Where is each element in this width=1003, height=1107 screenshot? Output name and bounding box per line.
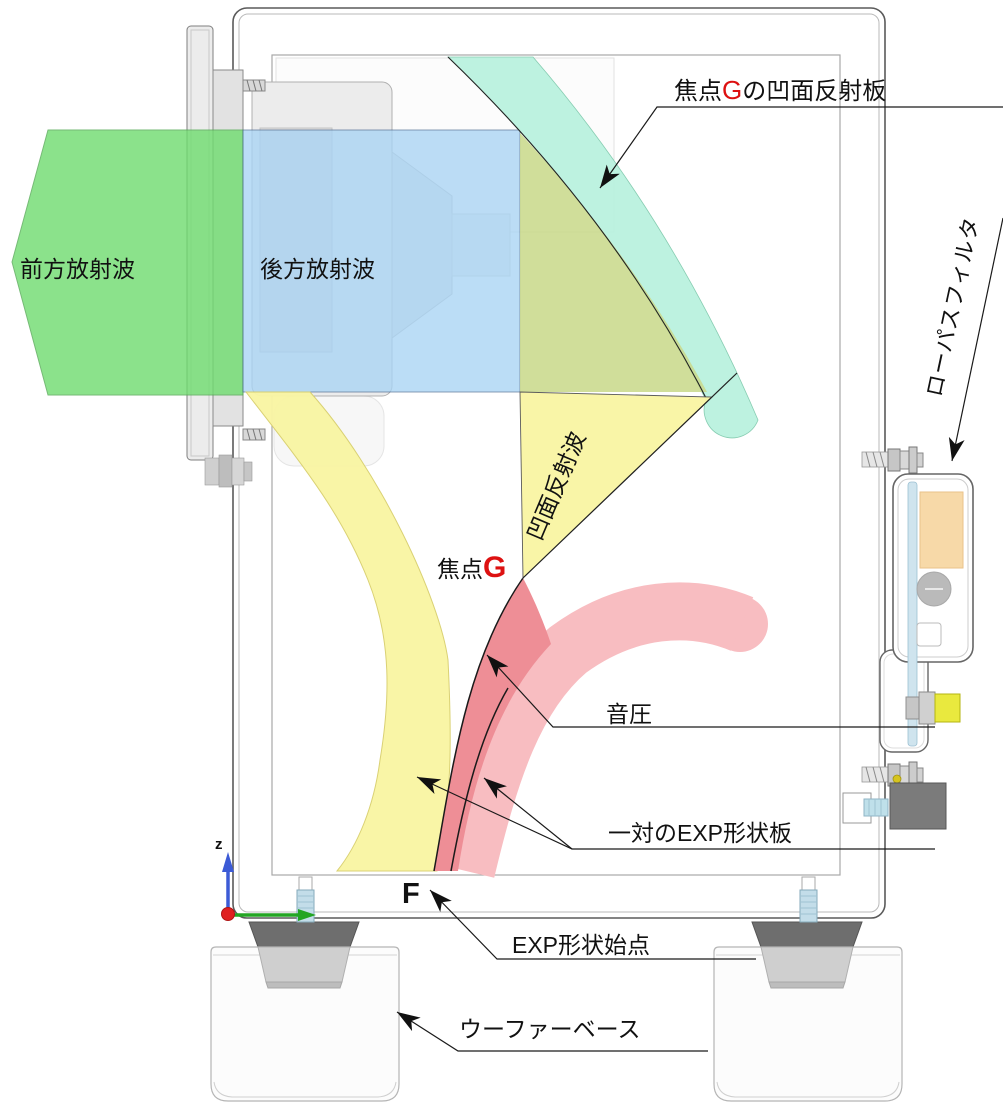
connector-barrel bbox=[906, 697, 919, 719]
connector-nut bbox=[919, 692, 935, 724]
inner-blue-bolt-icon bbox=[864, 799, 888, 816]
label-rear-wave: 後方放射波 bbox=[260, 256, 375, 282]
label-point-f: F bbox=[402, 878, 420, 910]
label-sound-pressure: 音圧 bbox=[606, 701, 652, 727]
diagram-canvas: z 焦点Gの凹面反射板 前方放射波 後方放射波 凹面反射波 焦点G 音圧 一対の… bbox=[0, 0, 1003, 1107]
filter-bottom-box bbox=[890, 783, 946, 829]
foot-cone-light bbox=[258, 947, 350, 982]
foot-cone-dark bbox=[249, 922, 359, 947]
label-exp-pair: 一対のEXP形状板 bbox=[608, 820, 792, 846]
filter-capacitor bbox=[920, 492, 963, 568]
wire-dot bbox=[893, 775, 901, 783]
label-front-wave: 前方放射波 bbox=[20, 256, 135, 282]
label-reflector: 焦点Gの凹面反射板 bbox=[674, 75, 886, 105]
baffle-bolt-top-icon bbox=[243, 80, 265, 91]
label-focus-g: 焦点G bbox=[437, 551, 506, 584]
foot-bolt-cap bbox=[299, 877, 312, 891]
connector-yellow bbox=[935, 694, 960, 722]
label-woofer-base: ウーファーベース bbox=[459, 1016, 640, 1042]
filter-terminal bbox=[917, 623, 941, 646]
baffle-bolt-bottom-icon bbox=[243, 429, 265, 440]
speaker-cross-section-diagram: z 焦点Gの凹面反射板 前方放射波 後方放射波 凹面反射波 焦点G 音圧 一対の… bbox=[0, 0, 1003, 1107]
label-lowpass: ローパスフィルタ bbox=[921, 215, 984, 400]
foot-cone-ring bbox=[266, 982, 342, 988]
axis-z-label: z bbox=[215, 836, 223, 853]
label-exp-start: EXP形状始点 bbox=[512, 932, 650, 958]
origin-point bbox=[222, 908, 235, 921]
